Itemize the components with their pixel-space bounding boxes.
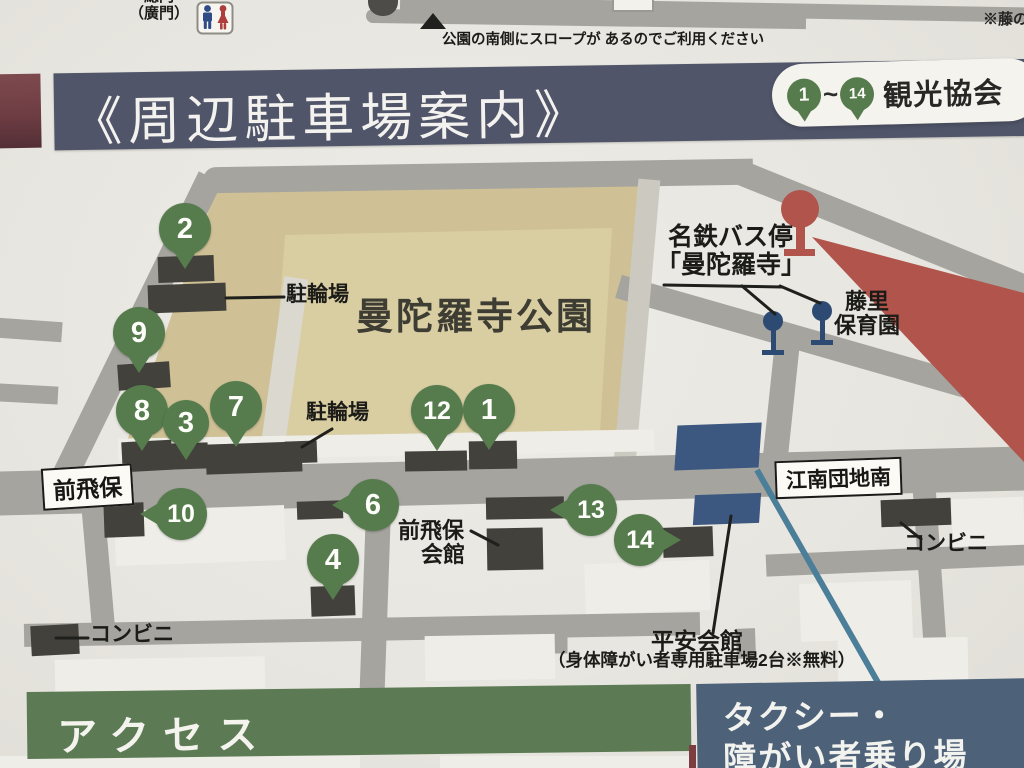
taxi-title-line1: タクシー・ (722, 692, 1024, 739)
map-label: （身体障がい者専用駐車場2台※無料） (548, 651, 855, 669)
city-block (799, 580, 913, 642)
taxi-panel: タクシー・ 障がい者乗り場 (696, 678, 1024, 768)
parking-pin-1: 1 (463, 384, 515, 436)
city-block (838, 637, 969, 684)
road (762, 338, 800, 468)
bus-stop-icon (812, 301, 832, 321)
parking-pin-3: 3 (163, 400, 209, 446)
pin-tail-icon (332, 495, 349, 515)
parking-lot-rect (103, 502, 144, 537)
pin-tail-icon (426, 434, 448, 451)
pin-tail-icon (851, 109, 865, 120)
parking-pin-2: 2 (159, 203, 211, 255)
legend-pill: 1 ~ 14 観光協会 (771, 58, 1024, 128)
legend-pin-14: 14 (840, 76, 875, 111)
pin-number: 9 (131, 317, 147, 350)
access-section-header: アクセス (27, 684, 692, 759)
leader-line (713, 516, 731, 633)
pin-number: 8 (134, 395, 150, 428)
red-marker-pole (796, 227, 805, 250)
parking-lot-rect (30, 624, 80, 656)
city-block (425, 634, 556, 681)
city-block (584, 560, 711, 614)
bottom-accent-sliver (689, 745, 696, 768)
parking-pin-9: 9 (113, 307, 165, 359)
bus-stop-icon (763, 311, 783, 331)
road (0, 383, 58, 404)
pin-number: 6 (365, 489, 381, 522)
pin-number: 1 (481, 394, 497, 427)
map-label: 曼陀羅寺公園 (356, 298, 596, 337)
building-outline (612, 0, 654, 12)
map-label: コンビニ (90, 624, 174, 646)
city-block (440, 756, 690, 768)
parking-pin-12: 12 (411, 385, 463, 437)
pin-tail-icon (174, 252, 196, 269)
parking-pin-13: 13 (565, 484, 617, 536)
pin-tail-icon (550, 500, 567, 520)
map-label: 名鉄バス停 (668, 224, 793, 250)
pin-tail-icon (797, 110, 811, 121)
pin-number: 14 (626, 526, 654, 555)
pin-tail-icon (175, 443, 197, 460)
heian-hall-building (674, 423, 761, 471)
pin-number: 10 (167, 500, 195, 529)
pin-tail-icon (128, 356, 150, 373)
corner-note: ※藤の (983, 8, 1024, 29)
taxi-title-line2: 障がい者乗り場 (723, 733, 1024, 768)
pin-number: 12 (423, 397, 451, 426)
parking-lot-rect (881, 498, 952, 527)
road (615, 275, 1024, 419)
bus-stop-pole (820, 319, 825, 340)
parking-pin-6: 6 (347, 479, 399, 531)
pin-tail-icon (225, 430, 247, 447)
pin-number: 13 (577, 496, 605, 525)
legend-pin-1: 1 (787, 78, 822, 113)
city-block (55, 656, 266, 692)
pin-number: 4 (325, 544, 341, 577)
parking-pin-10: 10 (155, 488, 207, 540)
map-label: 駐輪場 (286, 284, 349, 306)
pin-tail-icon (322, 583, 344, 600)
parking-pin-4: 4 (307, 534, 359, 586)
parking-lot-rect (148, 283, 227, 314)
gate-label-line2: （廣門） (124, 5, 194, 22)
gate-label: 総門 （廣門） (124, 0, 194, 22)
heian-hall-building (693, 493, 761, 525)
bus-stop-base (811, 340, 833, 345)
leader-line (780, 286, 820, 303)
intersection-box: 前飛保 (41, 463, 134, 510)
pin-tail-icon (478, 433, 500, 450)
parking-pin-7: 7 (210, 381, 262, 433)
map-label: 駐輪場 (306, 402, 369, 424)
legend-label: 観光協会 (883, 69, 1004, 114)
map-label: コンビニ (904, 533, 988, 555)
pin-number: 7 (228, 391, 244, 424)
slope-arrow-icon (420, 13, 446, 29)
access-title: アクセス (57, 697, 692, 763)
pin-tail-icon (664, 530, 681, 550)
legend-pin-1-number: 1 (798, 84, 809, 106)
pin-number: 3 (178, 407, 194, 440)
parking-pin-14: 14 (614, 514, 666, 566)
legend-pin-14-number: 14 (849, 85, 866, 102)
leader-line (664, 285, 782, 287)
map-label: 「曼陀羅寺」 (656, 252, 806, 278)
map-label: 会館 (421, 543, 465, 566)
road (614, 179, 661, 464)
road (0, 318, 63, 342)
map-label: 藤里 (845, 290, 889, 313)
leader-line (226, 297, 284, 298)
parking-lot-rect (285, 440, 318, 463)
slope-note: 公園の南側にスロープが あるのでご利用ください (442, 28, 764, 49)
parking-lot-rect (405, 450, 467, 471)
pin-tail-icon (140, 504, 157, 524)
left-accent-stripe (0, 74, 42, 149)
parking-lot-rect (487, 528, 544, 571)
pin-number: 2 (177, 213, 193, 246)
intersection-box: 江南団地南 (774, 457, 902, 499)
bus-stop-base (762, 350, 784, 355)
pin-tail-icon (131, 434, 153, 451)
parking-pin-8: 8 (116, 385, 168, 437)
legend-tilde: ~ (823, 79, 839, 110)
map-label: 前飛保 (398, 519, 464, 542)
map-label: 保育園 (834, 314, 900, 337)
restroom-icon (196, 1, 234, 35)
parking-guide-sign: 総門 （廣門） 公園の南側にスロープが あるのでご利用ください ※藤の 駐輪場駐… (0, 0, 1024, 768)
road (203, 159, 753, 194)
bus-stop-pole (771, 329, 776, 350)
